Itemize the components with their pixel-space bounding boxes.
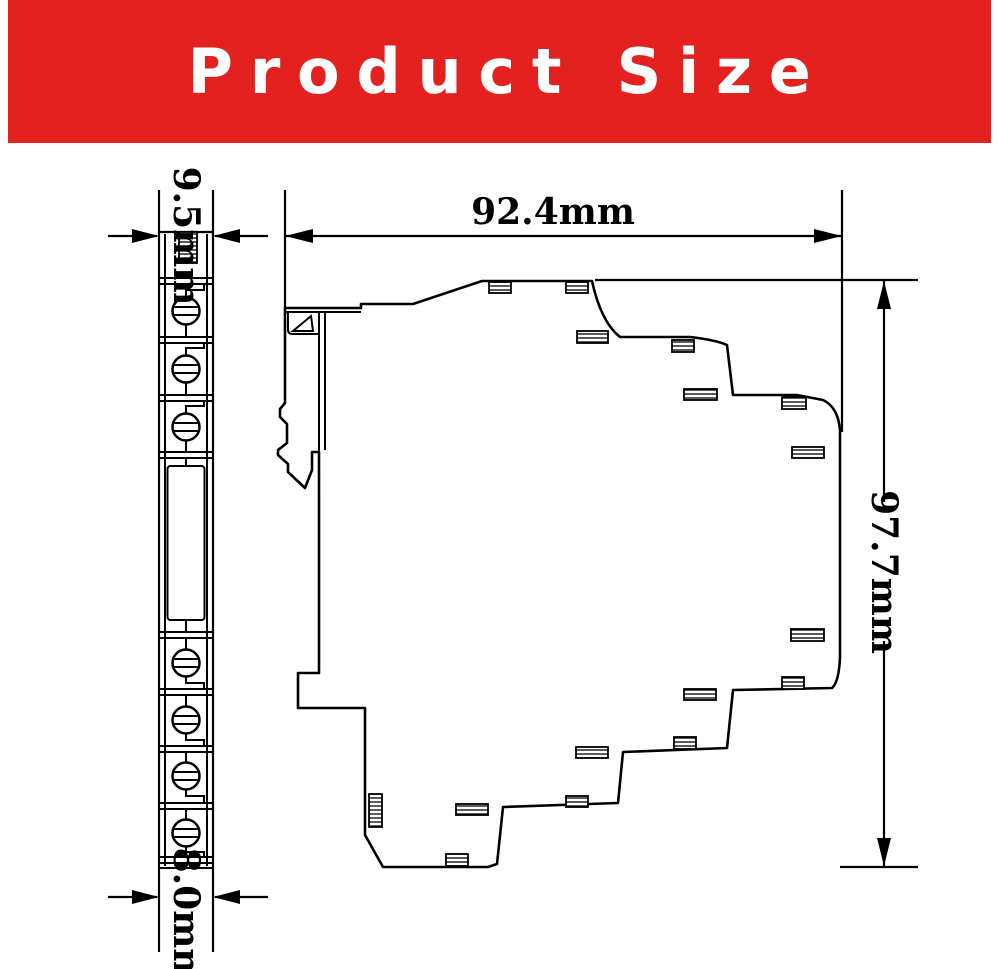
dimension-drawing: 9.5mm 92.4mm 97.7mm 8.0mm xyxy=(0,0,1000,969)
vent-slot xyxy=(791,629,824,641)
dimension-label: 9.5mm xyxy=(165,167,207,306)
vent-slot xyxy=(577,331,608,343)
dimension-label: 8.0mm xyxy=(165,848,207,969)
vent-slot xyxy=(566,282,588,293)
vent-slot xyxy=(566,796,588,807)
vent-slot xyxy=(684,389,717,400)
label-window xyxy=(168,458,205,632)
vent-slot xyxy=(489,282,511,293)
dimension-front-top-width: 9.5mm xyxy=(108,167,268,306)
side-body-outline xyxy=(278,281,840,867)
vent-slot xyxy=(369,794,382,827)
terminal-screw xyxy=(173,401,205,452)
vent-slot xyxy=(782,677,804,689)
dimension-front-bottom-width: 8.0mm xyxy=(108,848,268,969)
dimension-label: 97.7mm xyxy=(863,490,905,654)
arrowhead xyxy=(877,838,891,866)
vent-slot xyxy=(446,854,468,866)
vent-slot xyxy=(456,804,488,815)
vent-slot xyxy=(576,747,608,758)
dimension-side-depth: 92.4mm xyxy=(285,191,842,243)
vent-slot xyxy=(782,397,806,409)
side-view xyxy=(278,190,842,867)
page: Product Size xyxy=(0,0,1000,969)
arrowhead xyxy=(132,229,159,243)
arrowhead xyxy=(877,281,891,309)
arrowhead xyxy=(213,890,240,904)
terminal-screw xyxy=(173,638,205,689)
arrowhead xyxy=(814,229,842,243)
arrowhead xyxy=(213,229,240,243)
terminal-screw xyxy=(173,695,205,746)
vent-slot xyxy=(674,737,696,749)
dimension-label: 92.4mm xyxy=(471,191,635,233)
terminal-screw xyxy=(173,343,205,395)
vent-slot xyxy=(792,447,824,458)
arrowhead xyxy=(132,890,159,904)
arrowhead xyxy=(285,229,313,243)
vent-slot xyxy=(672,340,694,352)
vent-slot xyxy=(684,689,716,700)
terminal-screw xyxy=(173,752,205,803)
